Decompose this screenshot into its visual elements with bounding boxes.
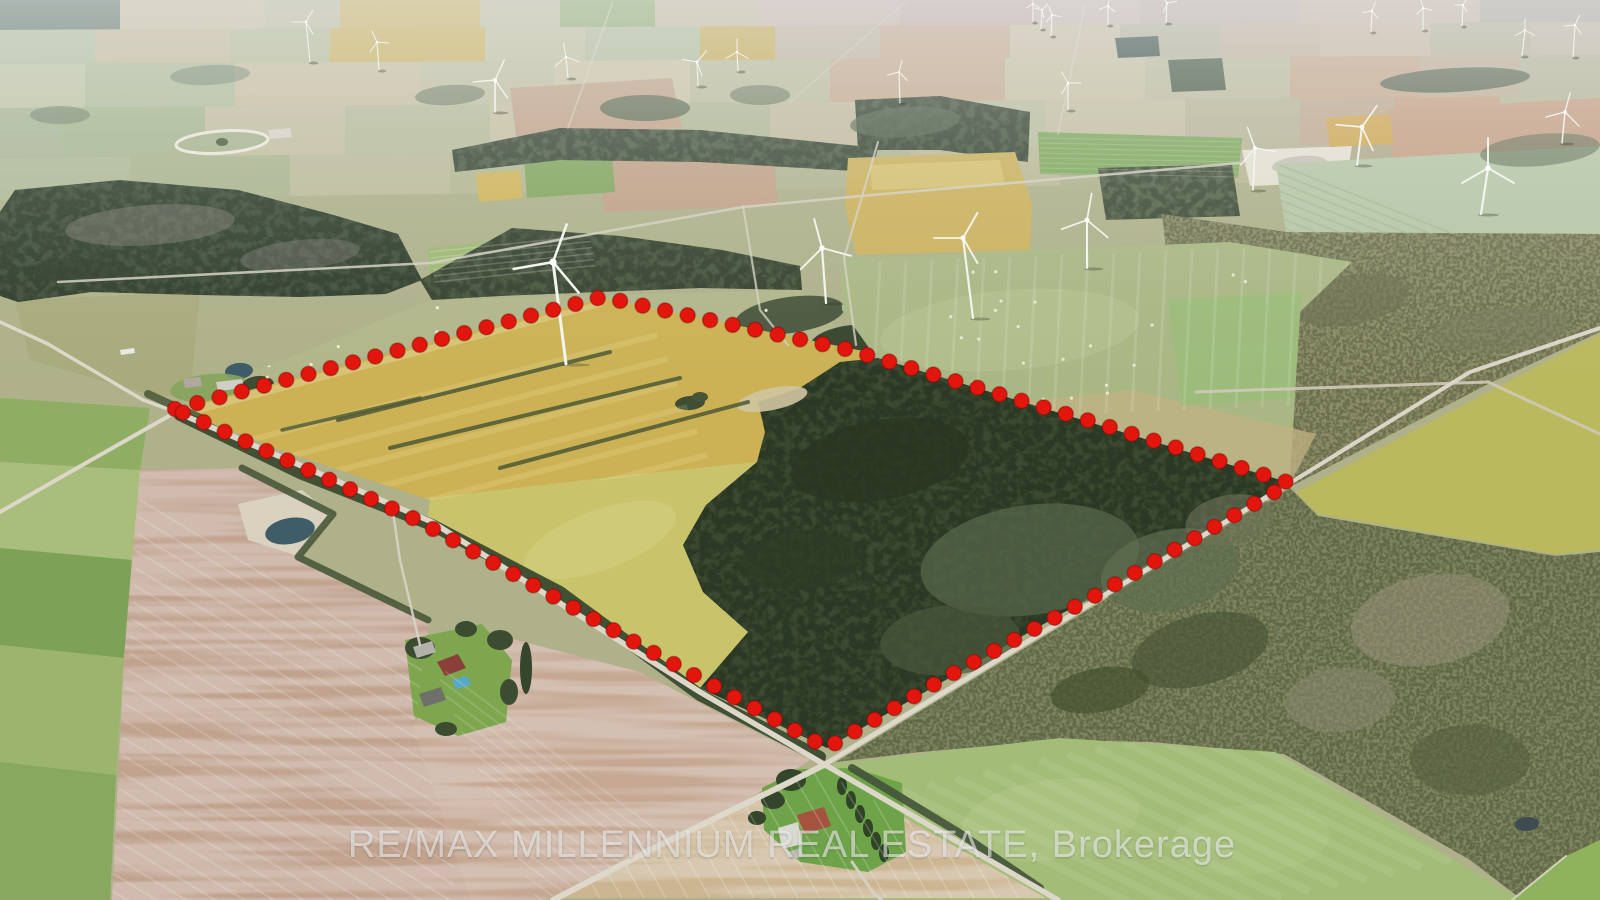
boundary-dot bbox=[926, 367, 941, 382]
boundary-dot bbox=[1227, 508, 1242, 523]
boundary-dot bbox=[1027, 621, 1042, 636]
boundary-dot bbox=[343, 482, 358, 497]
boundary-dot bbox=[412, 337, 427, 352]
left-strip-5 bbox=[0, 762, 116, 900]
boundary-dot bbox=[405, 511, 420, 526]
boundary-dot bbox=[815, 337, 830, 352]
boundary-dot bbox=[838, 341, 853, 356]
boundary-dot bbox=[1102, 420, 1117, 435]
boundary-dot bbox=[1247, 496, 1262, 511]
boundary-dot bbox=[322, 472, 337, 487]
boundary-dot bbox=[1036, 400, 1051, 415]
boundary-dot bbox=[725, 317, 740, 332]
aerial-scene bbox=[0, 0, 1600, 900]
homestead2-cedar bbox=[520, 642, 532, 694]
boundary-dot bbox=[466, 544, 481, 559]
boundary-dot bbox=[1107, 577, 1122, 592]
boundary-dot bbox=[882, 354, 897, 369]
boundary-dot bbox=[566, 600, 581, 615]
boundary-dot bbox=[501, 314, 516, 329]
boundary-dot bbox=[987, 643, 1002, 658]
boundary-dot bbox=[426, 521, 441, 536]
boundary-dot bbox=[1147, 554, 1162, 569]
brokerage-watermark: RE/MAX MILLENNIUM REAL ESTATE, Brokerage bbox=[348, 824, 1236, 867]
boundary-dot bbox=[767, 712, 782, 727]
boundary-dot bbox=[1267, 485, 1282, 500]
homestead2-tree-3 bbox=[455, 621, 477, 637]
boundary-dot bbox=[1207, 519, 1222, 534]
boundary-dot bbox=[860, 348, 875, 363]
left-strip-4 bbox=[0, 645, 124, 775]
boundary-dot bbox=[707, 679, 722, 694]
boundary-dot bbox=[586, 612, 601, 627]
boundary-dot bbox=[948, 374, 963, 389]
boundary-dot bbox=[635, 298, 650, 313]
homestead2-tree-2 bbox=[487, 630, 513, 650]
boundary-dot bbox=[506, 567, 521, 582]
boundary-dot bbox=[1190, 447, 1205, 462]
boundary-dot bbox=[646, 645, 661, 660]
boundary-dot bbox=[613, 293, 628, 308]
boundary-dot bbox=[217, 424, 232, 439]
boundary-dot bbox=[658, 303, 673, 318]
atmospheric-haze bbox=[0, 0, 1600, 620]
boundary-dot bbox=[434, 331, 449, 346]
boundary-dot bbox=[1256, 467, 1271, 482]
boundary-dot bbox=[887, 701, 902, 716]
boundary-dot bbox=[867, 712, 882, 727]
boundary-dot bbox=[1212, 454, 1227, 469]
boundary-dot bbox=[345, 355, 360, 370]
homestead3-tree-3 bbox=[748, 811, 766, 825]
boundary-dot bbox=[946, 665, 961, 680]
boundary-dot bbox=[546, 589, 561, 604]
boundary-dot bbox=[747, 701, 762, 716]
boundary-dot bbox=[446, 533, 461, 548]
boundary-dot bbox=[1234, 460, 1249, 475]
boundary-dot bbox=[190, 396, 205, 411]
boundary-dot bbox=[626, 634, 641, 649]
boundary-dot bbox=[680, 308, 695, 323]
boundary-dot bbox=[686, 668, 701, 683]
boundary-dot bbox=[259, 443, 274, 458]
boundary-dot bbox=[847, 724, 862, 739]
scrub-se-dark-3 bbox=[1410, 725, 1530, 795]
boundary-dot bbox=[280, 453, 295, 468]
boundary-dot bbox=[301, 366, 316, 381]
boundary-dot bbox=[384, 501, 399, 516]
homestead2-tree-5 bbox=[435, 722, 457, 736]
boundary-dot bbox=[793, 332, 808, 347]
boundary-dot bbox=[1124, 426, 1139, 441]
boundary-dot bbox=[196, 415, 211, 430]
boundary-dot bbox=[279, 372, 294, 387]
boundary-dot bbox=[1047, 610, 1062, 625]
boundary-dot bbox=[748, 322, 763, 337]
boundary-dot bbox=[546, 302, 561, 317]
boundary-dot bbox=[368, 349, 383, 364]
boundary-dot bbox=[526, 578, 541, 593]
boundary-dot bbox=[727, 690, 742, 705]
boundary-dot bbox=[256, 378, 271, 393]
boundary-dot bbox=[486, 555, 501, 570]
boundary-dot bbox=[1058, 406, 1073, 421]
boundary-dot bbox=[1067, 599, 1082, 614]
aerial-photo-real-estate-listing: RE/MAX MILLENNIUM REAL ESTATE, Brokerage bbox=[0, 0, 1600, 900]
boundary-dot bbox=[212, 390, 227, 405]
boundary-dot bbox=[363, 491, 378, 506]
boundary-dot bbox=[1127, 565, 1142, 580]
boundary-dot bbox=[970, 380, 985, 395]
boundary-dot bbox=[1007, 632, 1022, 647]
boundary-dot bbox=[523, 308, 538, 323]
boundary-dot bbox=[907, 689, 922, 704]
boundary-dot bbox=[606, 623, 621, 638]
boundary-dot bbox=[827, 736, 842, 751]
boundary-dot bbox=[323, 361, 338, 376]
boundary-dot bbox=[175, 405, 190, 420]
boundary-dot bbox=[966, 654, 981, 669]
boundary-dot bbox=[703, 313, 718, 328]
boundary-dot bbox=[904, 361, 919, 376]
boundary-dot bbox=[1014, 393, 1029, 408]
boundary-dot bbox=[238, 434, 253, 449]
homestead2-tree-4 bbox=[500, 679, 518, 705]
boundary-dot bbox=[1146, 433, 1161, 448]
boundary-dot bbox=[1080, 413, 1095, 428]
boundary-dot bbox=[568, 296, 583, 311]
boundary-dot bbox=[787, 723, 802, 738]
boundary-dot bbox=[457, 326, 472, 341]
boundary-dot bbox=[479, 320, 494, 335]
boundary-dot bbox=[807, 734, 822, 749]
boundary-dot bbox=[301, 463, 316, 478]
boundary-dot bbox=[590, 291, 605, 306]
boundary-dot bbox=[1187, 531, 1202, 546]
boundary-dot bbox=[1168, 440, 1183, 455]
boundary-dot bbox=[234, 384, 249, 399]
boundary-dot bbox=[1167, 542, 1182, 557]
boundary-dot bbox=[926, 677, 941, 692]
boundary-dot bbox=[390, 343, 405, 358]
boundary-dot bbox=[770, 327, 785, 342]
boundary-dot bbox=[666, 657, 681, 672]
boundary-dot bbox=[1087, 588, 1102, 603]
boundary-dot bbox=[992, 387, 1007, 402]
